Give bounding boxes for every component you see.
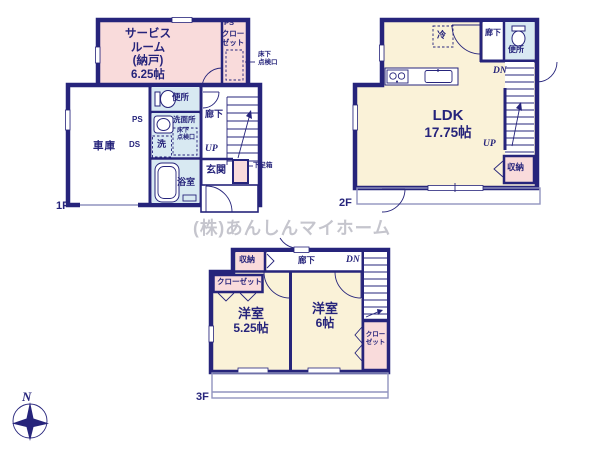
window — [172, 18, 192, 23]
window — [294, 247, 309, 253]
floorplan-page: (株)あんしんマイホーム サービス ルーム (納戸) 6.25帖 PS クローゼ… — [0, 0, 600, 449]
label-dn-3f: DN — [346, 255, 360, 266]
label-toilet-2f: 便所 — [508, 45, 524, 54]
watermark: (株)あんしんマイホーム — [193, 215, 391, 240]
label-shoe-box: 下足箱 — [253, 162, 273, 170]
window — [308, 368, 340, 373]
label-toilet-1f: 便所 — [172, 92, 189, 102]
toilet-icon — [512, 26, 525, 31]
label-closet-3f-right: クローゼット — [365, 331, 386, 346]
label-dn-2f: DN — [493, 66, 507, 77]
window — [353, 105, 358, 130]
label-storage-2f: 収納 — [507, 162, 524, 172]
label-closet-1f: クローゼット — [220, 30, 246, 48]
compass — [12, 402, 49, 441]
label-washroom: 洗面所 — [173, 116, 196, 125]
door-arc — [537, 62, 557, 82]
label-entrance: 玄関 — [206, 165, 226, 177]
label-ps-left: PS — [132, 115, 143, 124]
label-room1: 洋室 5.25帖 — [214, 306, 288, 335]
label-washer: 洗 — [157, 139, 166, 150]
label-floor-hatch-right: 床下点検口 — [258, 51, 278, 66]
label-hall-1f: 廊下 — [205, 109, 223, 120]
label-ldk: LDK 17.75帖 — [402, 107, 494, 141]
label-hall-2f: 廊下 — [485, 28, 501, 37]
label-floor-hatch-inner: 床下点検口 — [177, 128, 195, 142]
label-up-2f: UP — [483, 139, 496, 150]
window — [380, 45, 385, 61]
sliding-window — [428, 186, 483, 191]
shoe-box-1f — [233, 160, 248, 183]
window — [96, 47, 101, 63]
balcony-3f — [212, 373, 388, 398]
window — [209, 326, 214, 342]
toilet-icon — [155, 92, 160, 106]
label-hall-3f: 廊下 — [298, 255, 315, 265]
label-floor3: 3F — [196, 391, 209, 404]
window — [238, 368, 268, 373]
label-ps-top: PS — [224, 19, 234, 28]
label-bath: 浴室 — [177, 177, 195, 188]
compass-needle — [12, 402, 49, 441]
label-service-room: サービス ルーム (納戸) 6.25帖 — [105, 28, 191, 82]
label-compass-north: N — [22, 389, 31, 404]
label-ds: DS — [129, 140, 140, 149]
door-arc — [382, 189, 405, 212]
label-storage-3f: 収納 — [239, 255, 255, 264]
porch-1f — [201, 185, 258, 212]
window — [66, 110, 71, 130]
label-floor2: 2F — [339, 197, 352, 210]
label-up-1f: UP — [205, 144, 218, 155]
bathtub-icon — [155, 163, 179, 202]
label-closet-3f-left: クローゼット — [217, 278, 262, 287]
label-fridge: 冷 — [437, 30, 446, 41]
label-room2: 洋室 6帖 — [294, 301, 356, 330]
label-floor1: 1F — [56, 200, 69, 213]
label-garage: 車庫 — [93, 140, 116, 152]
